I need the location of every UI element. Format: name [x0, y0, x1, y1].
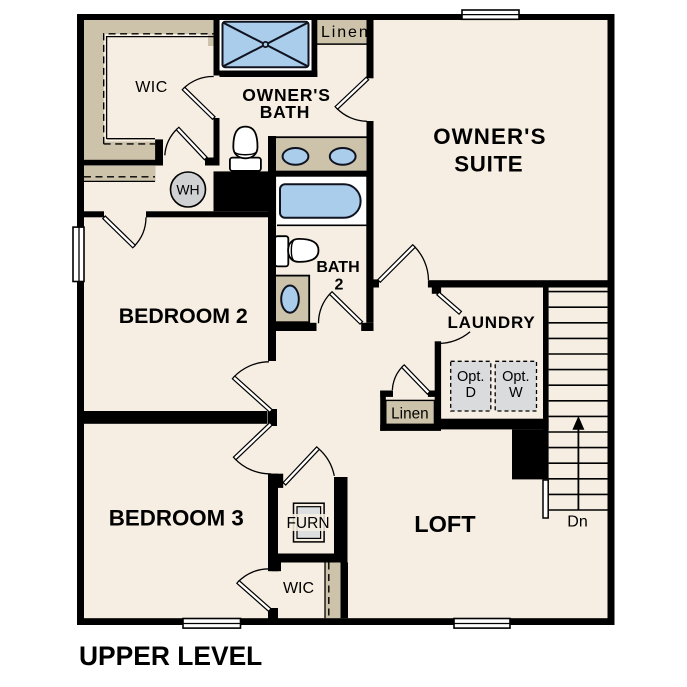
svg-text:LAUNDRY: LAUNDRY [447, 313, 535, 332]
svg-text:D: D [465, 385, 475, 401]
svg-text:W: W [509, 385, 523, 401]
svg-text:WIC: WIC [135, 79, 168, 96]
svg-text:BEDROOM 3: BEDROOM 3 [109, 506, 244, 531]
svg-text:2: 2 [335, 277, 344, 294]
svg-text:BATH: BATH [260, 102, 311, 122]
svg-text:WIC: WIC [283, 580, 314, 597]
svg-text:LOFT: LOFT [414, 511, 476, 537]
svg-text:Linen: Linen [391, 405, 428, 422]
svg-text:Linen: Linen [321, 24, 370, 41]
svg-text:Dn: Dn [567, 514, 587, 531]
svg-text:FURN: FURN [286, 515, 329, 532]
svg-text:UPPER LEVEL: UPPER LEVEL [79, 641, 262, 671]
svg-text:Opt.: Opt. [457, 369, 484, 385]
svg-text:SUITE: SUITE [454, 152, 523, 177]
svg-text:BEDROOM 2: BEDROOM 2 [119, 304, 248, 328]
svg-text:BATH: BATH [316, 259, 359, 276]
svg-text:OWNER'S: OWNER'S [433, 124, 546, 149]
svg-text:WH: WH [176, 182, 199, 198]
svg-text:Opt.: Opt. [502, 369, 529, 385]
